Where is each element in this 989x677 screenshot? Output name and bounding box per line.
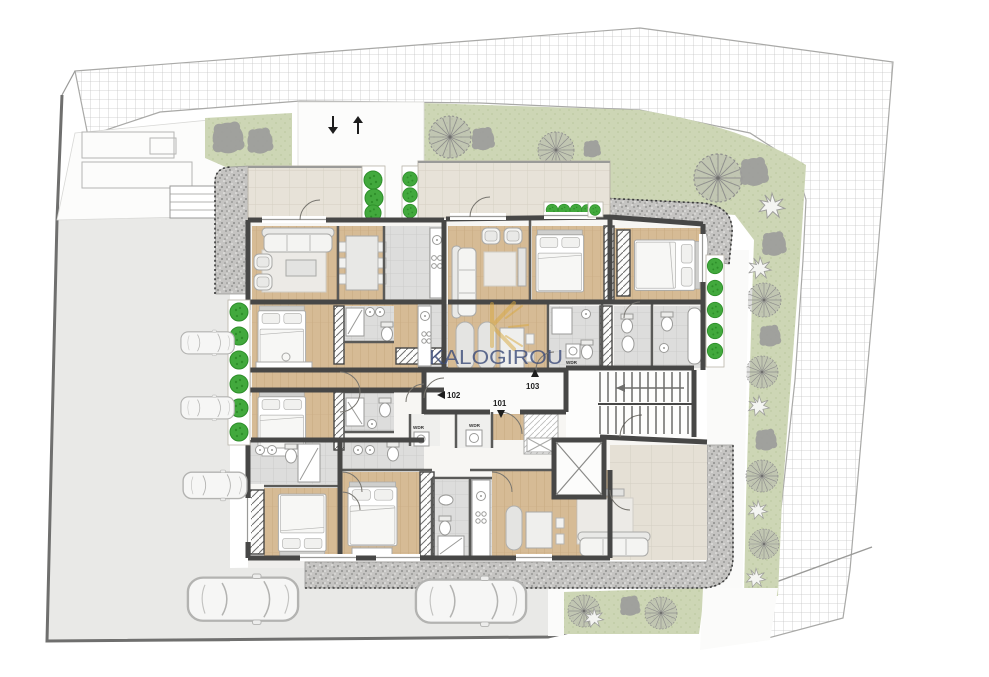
exterior-steps <box>170 186 216 218</box>
svg-text:103: 103 <box>526 382 540 391</box>
armchair <box>482 228 500 244</box>
balcony <box>248 166 362 220</box>
watermark-brand-text: KALOGIROU <box>429 347 563 369</box>
car-icon <box>181 330 234 356</box>
tree-blob-icon <box>756 429 778 451</box>
tree-blob-icon <box>762 231 787 256</box>
sink-icon <box>439 495 453 505</box>
dining-table <box>526 512 552 548</box>
car-icon <box>416 576 526 626</box>
chair <box>556 534 564 544</box>
car-icon <box>181 395 234 421</box>
bench-seat <box>506 506 522 550</box>
tree-blob-icon <box>247 128 273 154</box>
svg-text:102: 102 <box>447 391 461 400</box>
tree-blob-icon <box>620 596 640 616</box>
tv-cabinet <box>518 248 526 286</box>
tree-radial-icon <box>746 356 778 388</box>
wdr-label: WDR <box>413 425 425 430</box>
floor-plan-canvas: KALOGIROU 102 101 103 WDR WDR WDR <box>0 0 989 677</box>
bathroom <box>342 442 424 470</box>
bed <box>634 240 700 290</box>
dining-table <box>346 236 378 290</box>
bed <box>348 482 397 546</box>
bathtub <box>688 308 701 364</box>
armchair <box>504 228 522 244</box>
sink-icon <box>622 336 634 352</box>
washer-icon <box>466 430 482 446</box>
chair <box>556 518 564 528</box>
tree-blob-icon <box>472 127 495 150</box>
armchair <box>254 254 272 270</box>
elevator <box>554 440 604 497</box>
tree-blob-icon <box>760 325 782 347</box>
tree-radial-icon <box>645 597 677 629</box>
rug <box>484 252 516 286</box>
planter-hedge <box>362 166 385 222</box>
coffee-table <box>286 260 316 276</box>
shower <box>552 308 572 334</box>
tree-radial-icon <box>749 529 779 559</box>
washer-icon <box>566 344 580 358</box>
planter-hedge <box>402 166 418 222</box>
tree-radial-icon <box>747 283 781 317</box>
sofa <box>262 228 334 252</box>
building <box>244 197 707 561</box>
tree-blob-icon <box>213 122 245 154</box>
bed <box>536 230 584 292</box>
sink-icon <box>421 312 430 321</box>
tree-radial-icon <box>746 460 778 492</box>
sink-icon <box>477 492 486 501</box>
tree-radial-icon <box>429 116 471 158</box>
car-icon <box>183 470 247 501</box>
tree-blob-icon <box>740 157 769 186</box>
sofa <box>578 532 650 556</box>
tree-radial-icon <box>694 154 742 202</box>
tree-blob-icon <box>584 140 601 157</box>
sink-icon <box>433 236 442 245</box>
wdr-label: WDR <box>566 360 578 365</box>
sofa <box>452 246 476 318</box>
bed <box>278 494 326 556</box>
svg-text:101: 101 <box>493 399 507 408</box>
upper-left-court <box>57 118 230 220</box>
car-icon <box>188 574 298 624</box>
wdr-label: WDR <box>469 423 481 428</box>
chair <box>526 334 534 344</box>
armchair <box>254 274 272 290</box>
